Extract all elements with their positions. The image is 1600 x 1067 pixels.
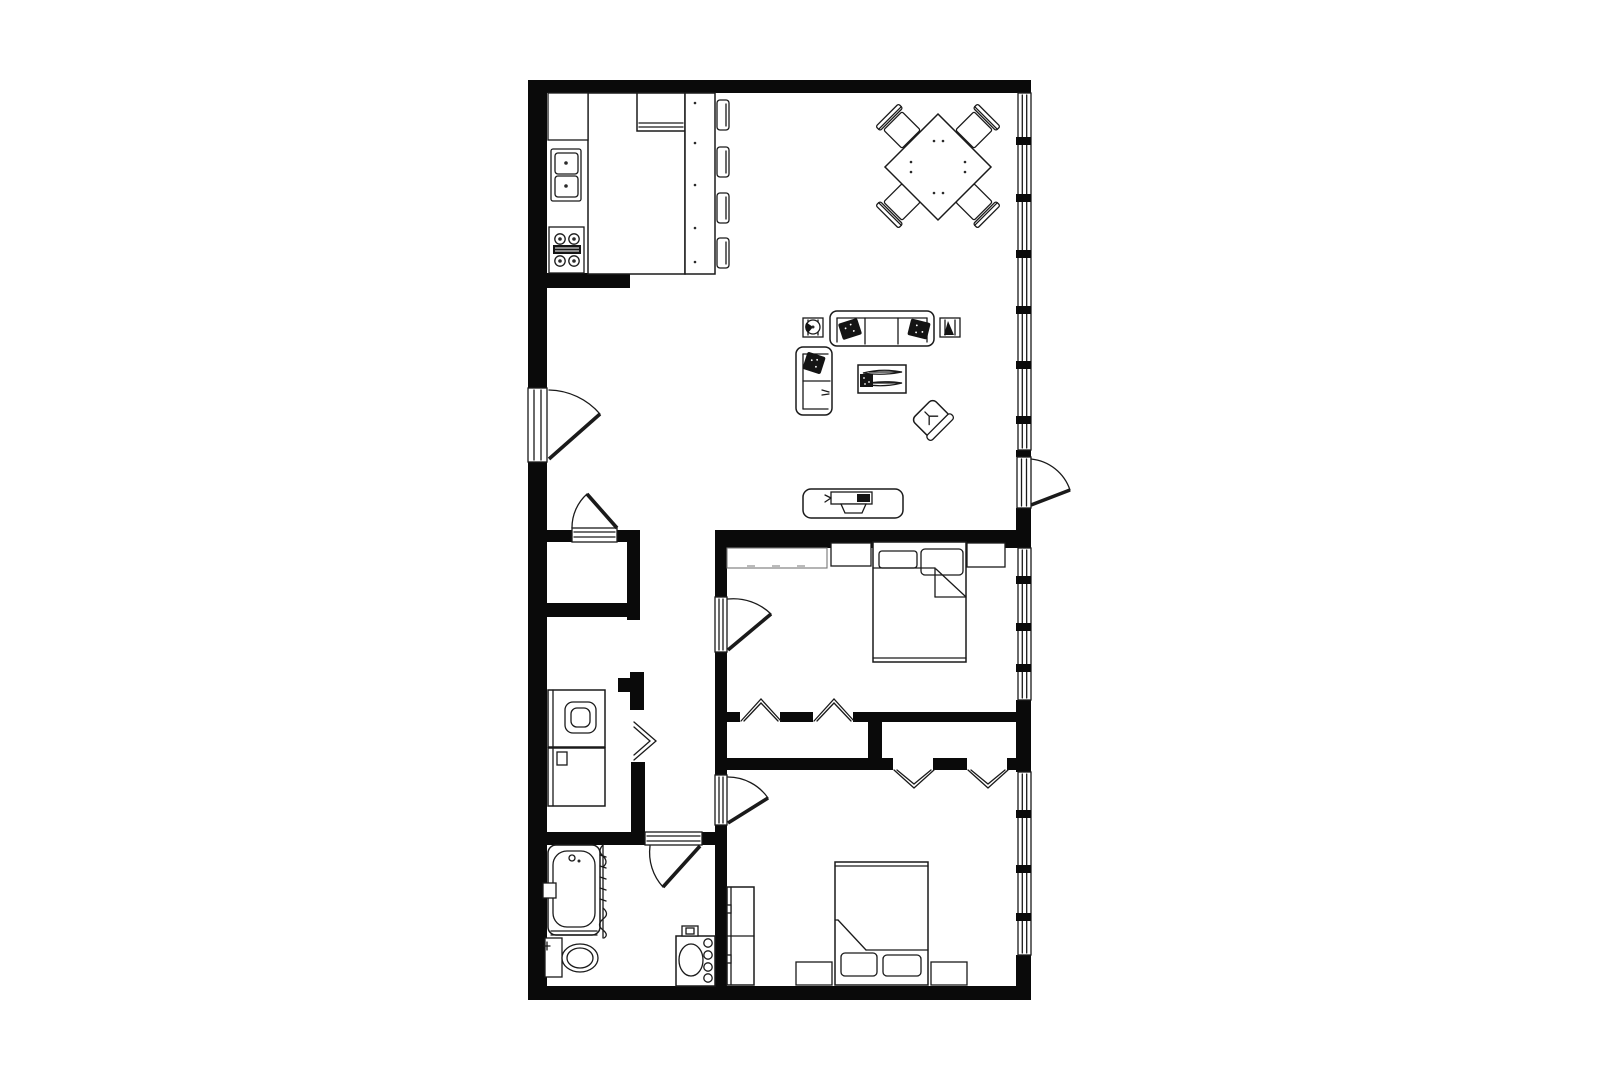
window-mullion: [1016, 810, 1031, 818]
pillow: [841, 953, 877, 976]
bar-stool: [717, 193, 729, 223]
pillow: [879, 551, 917, 568]
kitchen-sink: [551, 149, 581, 201]
door-leaf: [1031, 490, 1070, 505]
side-table: [940, 318, 960, 337]
wall-kitchen-south: [528, 273, 630, 288]
door-swing-arc: [1031, 459, 1070, 490]
door-swing-arc: [572, 494, 587, 528]
dresser: [727, 548, 827, 568]
washer: [548, 690, 605, 747]
bed-double: [835, 862, 928, 985]
wall-right-block-below-balcony-door: [1016, 508, 1031, 530]
sofa-three-seat: [830, 311, 934, 346]
wall-right-block-closets: [1016, 700, 1031, 772]
nightstand: [931, 962, 967, 985]
wall-cabinet: [548, 93, 588, 140]
bathroom-fixtures: [543, 845, 715, 986]
bathroom-door: [645, 832, 702, 887]
wall-bathroom-north-left: [528, 832, 645, 845]
wall-closet-north-b: [780, 712, 813, 722]
bar-stool: [717, 238, 729, 268]
wall-closet-north-a: [715, 712, 740, 722]
book: [860, 374, 873, 387]
door-swing-arc: [549, 390, 600, 414]
window-mullion: [1016, 664, 1031, 672]
bed-double: [873, 542, 966, 662]
wall-hall-east-lower: [715, 825, 727, 986]
bedroom-1-furniture: [727, 542, 1005, 662]
dryer: [548, 748, 605, 806]
bar-stool: [717, 147, 729, 177]
nightstand: [831, 543, 871, 566]
bar-stools: [717, 100, 729, 268]
armchair: [910, 397, 955, 442]
wall-hall-closet-divider: [528, 603, 640, 617]
bedroom-1-door: [715, 597, 771, 652]
pillow: [921, 549, 963, 575]
loveseat: [796, 347, 832, 415]
balcony-door: [1017, 457, 1070, 508]
handle: [727, 955, 731, 963]
wall-laundry-east-lower: [631, 762, 645, 832]
wall-exterior-bottom: [528, 986, 1031, 1000]
wall-hall-closet-north-left: [528, 530, 572, 542]
door-leaf: [549, 414, 600, 459]
dining-set: [876, 104, 1000, 228]
vanity-sink: [676, 926, 715, 986]
window-mullion: [1016, 361, 1031, 369]
breakfast-bar: [685, 93, 715, 274]
window-mullion: [1016, 306, 1031, 314]
pillow: [883, 955, 921, 976]
door-leaf: [663, 846, 700, 887]
kitchen: [548, 93, 729, 274]
tub-faucet: [569, 855, 575, 861]
window-mullion: [1016, 623, 1031, 631]
doors: [528, 388, 1070, 887]
window-mullion: [1016, 865, 1031, 873]
nightstand: [967, 543, 1005, 567]
wall-exterior-top: [528, 80, 1031, 93]
wardrobe: [727, 887, 754, 985]
knob: [704, 974, 712, 982]
wall-right-block-bottom: [1016, 955, 1031, 1000]
soap-dish: [543, 883, 556, 898]
floor-plan-page: [0, 0, 1600, 1067]
window-bedroom-2: [1016, 772, 1031, 955]
door-leaf: [728, 614, 771, 650]
door-swing-arc: [650, 846, 663, 887]
range-stove: [549, 227, 584, 273]
door-leaf: [587, 494, 617, 528]
wall-closet-south-b: [933, 758, 967, 770]
window-living-room: [1016, 93, 1031, 450]
wall-closet-divider: [868, 712, 882, 770]
tv-console: [803, 489, 903, 518]
laundry-bifold-door: [634, 722, 656, 760]
entry-door: [528, 388, 600, 462]
nightstand: [796, 962, 832, 985]
knob: [704, 951, 712, 959]
bar-stool: [717, 100, 729, 130]
bedroom-2-closet-bifold-doors: [894, 770, 1008, 788]
wall-laundry-stub-h: [618, 678, 632, 692]
window-mullion: [1016, 576, 1031, 584]
wall-right-block-above-balcony-door: [1016, 450, 1031, 457]
knob: [704, 939, 712, 947]
door-swing-arc: [728, 777, 768, 798]
hall-closet-door: [572, 494, 617, 542]
window-mullion: [1016, 416, 1031, 424]
wall-exterior-left-lower: [528, 462, 547, 1000]
handle: [727, 905, 731, 913]
knob: [704, 963, 712, 971]
wall-laundry-stub-v: [630, 672, 644, 710]
door-swing-arc: [728, 599, 771, 614]
bedroom-2-door: [715, 775, 768, 825]
laundry-appliances: [548, 690, 605, 806]
window-mullion: [1016, 194, 1031, 202]
coffee-table: [858, 365, 906, 393]
window-mullion: [1016, 913, 1031, 921]
door-leaf: [728, 798, 768, 823]
bedroom-2-furniture: [727, 862, 967, 985]
refrigerator: [637, 93, 685, 131]
wall-exterior-left-upper: [528, 80, 547, 388]
living-room-furniture: [796, 311, 960, 518]
window-bedroom-1: [1016, 548, 1031, 700]
toilet: [544, 938, 598, 977]
side-table-with-plant: [803, 318, 823, 337]
window-mullion: [1016, 137, 1031, 145]
window-mullion: [1016, 250, 1031, 258]
floor-plan: [0, 0, 1600, 1067]
